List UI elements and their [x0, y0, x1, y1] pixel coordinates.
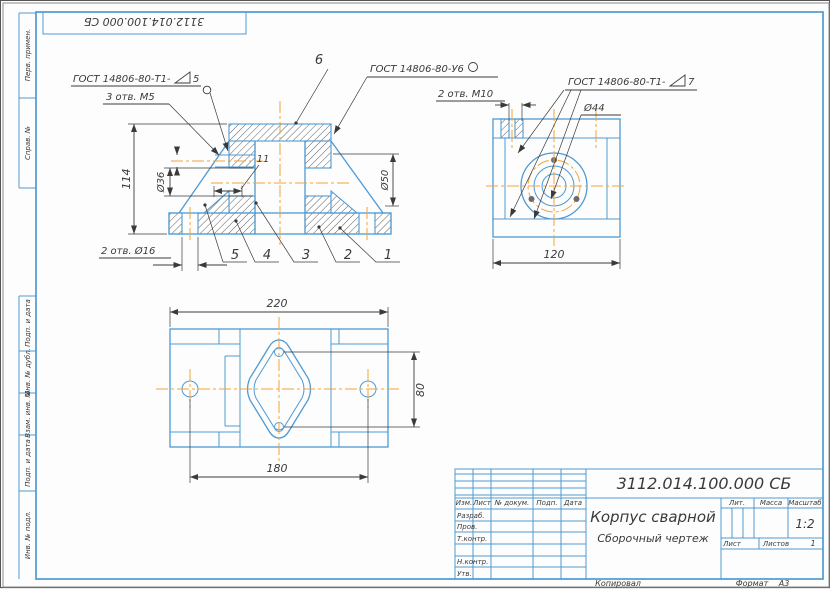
drawing-canvas: Перв. примен. Справ. № Подп. и дата Инв.… — [1, 1, 830, 589]
dim-rib-label: 11 — [257, 154, 270, 165]
weld-note-left-size: 5 — [193, 74, 199, 85]
margin-label-podp-data-2: Подп. и дата — [24, 439, 32, 487]
front-view: 114 Ø36 Ø50 11 — [71, 53, 498, 271]
dim-boss-label: Ø50 — [379, 170, 391, 192]
title-block: 3112.014.100.000 СБ Корпус сварной Сборо… — [455, 469, 823, 579]
fillet-weld-symbol — [175, 72, 190, 83]
balloon-2: 2 — [344, 248, 352, 263]
col-doc: № докум. — [494, 499, 530, 507]
weld-note-left: ГОСТ 14806-80-Т1- 5 — [71, 72, 228, 151]
drawing-sheet: Перв. примен. Справ. № Подп. и дата Инв.… — [0, 0, 830, 588]
row-tkontr: Т.контр. — [457, 535, 487, 543]
weld-note-top-text: ГОСТ 14806-80-У6 — [370, 64, 464, 75]
margin-label-vzam-inv: Взам. инв. № — [24, 390, 32, 438]
dim-boss-d50: Ø50 — [333, 154, 399, 206]
dim-bolt-circle-label: Ø44 — [583, 102, 605, 114]
dim-width-120: 120 — [493, 239, 620, 269]
margin-label-perv-primen: Перв. примен. — [24, 29, 32, 82]
margin-column: Перв. примен. Справ. № Подп. и дата Инв.… — [19, 13, 36, 579]
sheet-frame — [3, 3, 829, 587]
fillet-weld-symbol — [670, 75, 685, 86]
dim-span-label: 180 — [267, 462, 288, 475]
side-view: 2 отв. М10 ГОСТ 14806-80-Т1- 7 Ø44 — [436, 75, 697, 269]
stamp-doc-number: 3112.014.100.000 СБ — [84, 15, 204, 28]
margin-label-inv-dubl: Инв. № дубл. — [24, 348, 32, 396]
bolt-hole — [574, 196, 580, 202]
margin-label-sprav-no: Справ. № — [24, 126, 32, 160]
footer-format-value: А3 — [778, 579, 790, 588]
note-holes-m10: 2 отв. М10 — [436, 89, 536, 121]
balloon-6: 6 — [315, 53, 323, 68]
title-part-name: Корпус сварной — [590, 508, 716, 526]
dim-length-label: 220 — [267, 297, 288, 310]
row-nkontr: Н.контр. — [457, 558, 488, 566]
dim-depth-label: 80 — [414, 383, 427, 397]
weld-contour-symbol — [469, 63, 478, 72]
margin-label-inv-podl: Инв. № подл. — [24, 511, 32, 559]
header-mass: Масса — [760, 499, 782, 507]
sheet-label: Лист — [722, 540, 742, 548]
col-sign: Подп. — [536, 499, 557, 507]
footer-format-label: Формат — [736, 579, 769, 588]
note-holes-m5-label: 3 отв. М5 — [106, 92, 155, 103]
weld-note-left-text: ГОСТ 14806-80-Т1- — [73, 74, 171, 85]
note-holes-m10-label: 2 отв. М10 — [438, 89, 493, 100]
dim-width-label: 120 — [544, 248, 565, 261]
dim-height-label: 114 — [120, 169, 133, 190]
header-scale: Масштаб — [788, 499, 822, 507]
sheets-label: Листов — [762, 540, 789, 548]
weld-note-right-size: 7 — [688, 77, 695, 88]
balloon-4: 4 — [263, 248, 271, 263]
col-list: Лист — [472, 499, 492, 507]
weld-point-symbol — [203, 86, 211, 94]
row-utv: Утв. — [457, 570, 472, 578]
note-holes-d16-label: 2 отв. Ø16 — [101, 245, 155, 257]
stamp-box: 3112.014.100.000 СБ — [43, 12, 246, 34]
balloon-5: 5 — [231, 248, 239, 263]
title-doc-number: 3112.014.100.000 СБ — [617, 474, 792, 493]
note-holes-d16: 2 отв. Ø16 — [99, 237, 227, 271]
col-izm: Изм. — [456, 499, 472, 507]
header-lit: Лит. — [728, 499, 745, 507]
footer-copied: Копировал — [595, 579, 641, 588]
note-holes-m5: 3 отв. М5 — [103, 92, 219, 155]
sheets-value: 1 — [810, 539, 815, 548]
row-prov: Пров. — [457, 523, 477, 531]
bolt-hole — [529, 196, 535, 202]
dim-bore-label: Ø36 — [155, 172, 167, 194]
weld-note-right-text: ГОСТ 14806-80-Т1- — [568, 77, 666, 88]
title-doc-type: Сборочный чертеж — [597, 532, 708, 545]
col-date: Дата — [563, 499, 582, 507]
margin-label-podp-data-1: Подп. и дата — [24, 299, 32, 347]
dim-bore-d36: Ø36 — [155, 168, 253, 196]
balloon-3: 3 — [302, 248, 310, 263]
balloon-1: 1 — [384, 248, 392, 263]
dim-bolt-circle-d44: Ø44 — [551, 102, 621, 199]
top-view: 220 180 80 — [156, 297, 427, 483]
row-razrab: Разраб. — [457, 512, 485, 520]
scale-value: 1:2 — [795, 517, 814, 531]
